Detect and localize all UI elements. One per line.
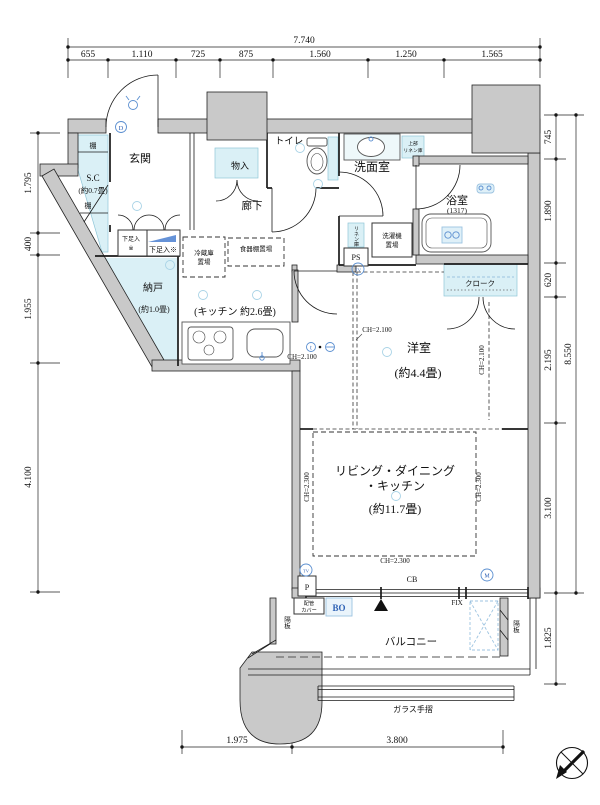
floorplan-page: 7.740 655 1.110 725 875 1.560 1.250 1.56… [0,0,600,800]
dim-top-0: 655 [81,50,96,60]
ch-ldk-bottom-label: CH=2.300 [380,557,410,565]
nando-label: 納戸 [143,281,163,294]
dimension-left: 1.795 400 1.955 4.100 [24,131,60,593]
partition-right-label: 隔板 [512,619,520,635]
nando-size-label: (約1.0畳) [138,304,170,314]
dim-top-3: 875 [239,50,254,60]
pillar-balcony [240,652,322,744]
dim-top-1: 1.110 [131,50,152,60]
dim-bottom-0: 1.975 [226,736,248,746]
floorplan-drawing: 7.740 655 1.110 725 875 1.560 1.250 1.56… [0,0,600,800]
shoe-right-label: 下足入※ [149,246,177,254]
genkan-label: 玄関 [129,151,151,165]
toilet-counter [328,137,338,180]
dim-left-0: 1.795 [24,172,34,194]
washer-label-1: 洗濯機 [382,231,402,240]
washer-label-2: 置場 [386,240,400,249]
shelf-mid-label: 棚 [85,201,92,210]
hall-closet-doors [216,180,258,201]
shoe-left-label-2: ※ [128,245,133,252]
ldk-door [294,271,337,314]
dimension-bottom: 1.975 3.800 [180,730,504,754]
ac-unit-space [470,601,498,650]
fridge-label-1: 冷蔵庫 [194,248,214,257]
upper-linen-cabinet [402,136,424,158]
glass-railing [318,686,514,701]
linen-upper-label-2: リネン庫 [403,147,422,154]
dim-right-total: 8.550 [564,343,574,365]
bo-label: BO [332,603,345,613]
marker-m-icon: M [481,569,493,581]
dim-right-0: 745 [544,130,554,145]
marker-m-text: M [484,574,490,580]
shelf-top-label: 棚 [90,141,97,150]
monoire-label: 物入 [231,160,249,171]
ch-bedroom-right-label: CH=2.100 [478,345,486,375]
dim-top-4: 1.560 [309,50,331,60]
dim-right-balcony: 1.825 [544,627,554,649]
bath-size-label: (1317) [447,206,467,215]
bedroom-size-label: (約4.4畳) [395,365,442,380]
toilet-label: トイレ [275,137,304,147]
dim-right-1: 1.890 [544,200,554,222]
fridge-space [183,237,225,277]
marker-tv-bedroom-text: TV [355,268,362,273]
glass-rail-label: ガラス手摺 [393,704,433,714]
pipe-cover-label-1: 配管 [304,599,314,607]
washbasin-fixture [344,134,400,160]
p-label: P [305,583,310,592]
washroom-label: 洗面室 [354,159,390,174]
marker-tv-ldk-icon: TV [300,564,312,576]
toilet-fixture [307,138,327,174]
ch-bedroom-label: CH=2.100 [362,326,392,334]
sc-label: S.C [86,173,99,183]
marker-tv-ldk-text: TV [303,569,310,574]
dim-right-2: 620 [544,273,554,288]
marker-t-icon: t [307,343,335,352]
linen-label: リネン庫 [353,226,359,248]
ldk-label-1: リビング・ダイニング [335,463,455,478]
ldk-size-label: (約11.7畳) [369,501,422,516]
pillar-top-middle [207,92,267,140]
shoe-box-left [118,230,147,256]
dim-top-total: 7.740 [293,36,315,46]
dim-right-4: 3.100 [544,497,554,519]
shoe-left-label-1: 下足入 [122,236,140,243]
dim-top-5: 1.250 [395,50,417,60]
sc-size-label: (約0.7畳) [78,185,108,195]
pipe-cover-label-2: カバー [301,607,317,614]
dim-left-2: 1.955 [24,298,34,320]
hall-label: 廊下 [242,199,263,212]
ch-ldk-left-label: CH=2.300 [303,472,311,502]
cloak-doors [447,297,515,329]
ldk-ch-outline [313,432,476,556]
shoe-closet-doors [118,215,180,230]
cloak-label: クローク [465,279,495,288]
cb-label: CB [407,575,418,584]
dim-left-3: 4.100 [24,466,34,488]
marker-d-text: D [119,125,124,132]
partition-left-label: 隔板 [283,615,291,631]
fix-label: FIX [451,599,462,607]
balcony-label: バルコニー [385,636,437,648]
dim-top-2: 725 [191,50,206,60]
balcony-partition-right [500,598,508,656]
dimension-top: 7.740 655 1.110 725 875 1.560 1.250 1.56… [66,36,541,78]
washroom-door [339,172,383,216]
washer-box [372,223,412,257]
kitchen-counter [182,322,290,364]
ps-label: PS [352,253,361,262]
dim-left-1: 400 [24,237,34,252]
ldk-label-2: ・キッチン [365,479,425,493]
marker-t-text: t [310,346,312,352]
dim-bottom-1: 3.800 [386,736,408,746]
bath-label: 浴室 [446,193,468,207]
entrance-light-icon [126,96,140,110]
marker-d-icon: D [116,122,127,133]
dim-right-3: 2.195 [544,349,554,371]
shower-faucet-icon [477,184,494,193]
kitchen-label: (キッチン 約2.6畳) [194,305,276,318]
sink [247,329,283,357]
cupboard-label: 食器棚置場 [240,244,273,253]
bedroom-label: 洋室 [407,340,431,355]
dimension-right: 745 1.890 620 2.195 3.100 8.550 1.825 [544,113,584,685]
ch-kitchen-label: CH=2.100 [287,353,317,361]
pillar-top-right [472,85,540,153]
compass-icon [556,748,588,780]
ch-ldk-right-label: CH=2.300 [475,472,483,502]
fridge-label-2: 置場 [198,257,212,266]
dim-top-6: 1.565 [481,50,503,60]
linen-upper-label-1: 上部 [408,140,418,147]
toilet-door [272,188,316,232]
window-center-mark [374,599,388,611]
